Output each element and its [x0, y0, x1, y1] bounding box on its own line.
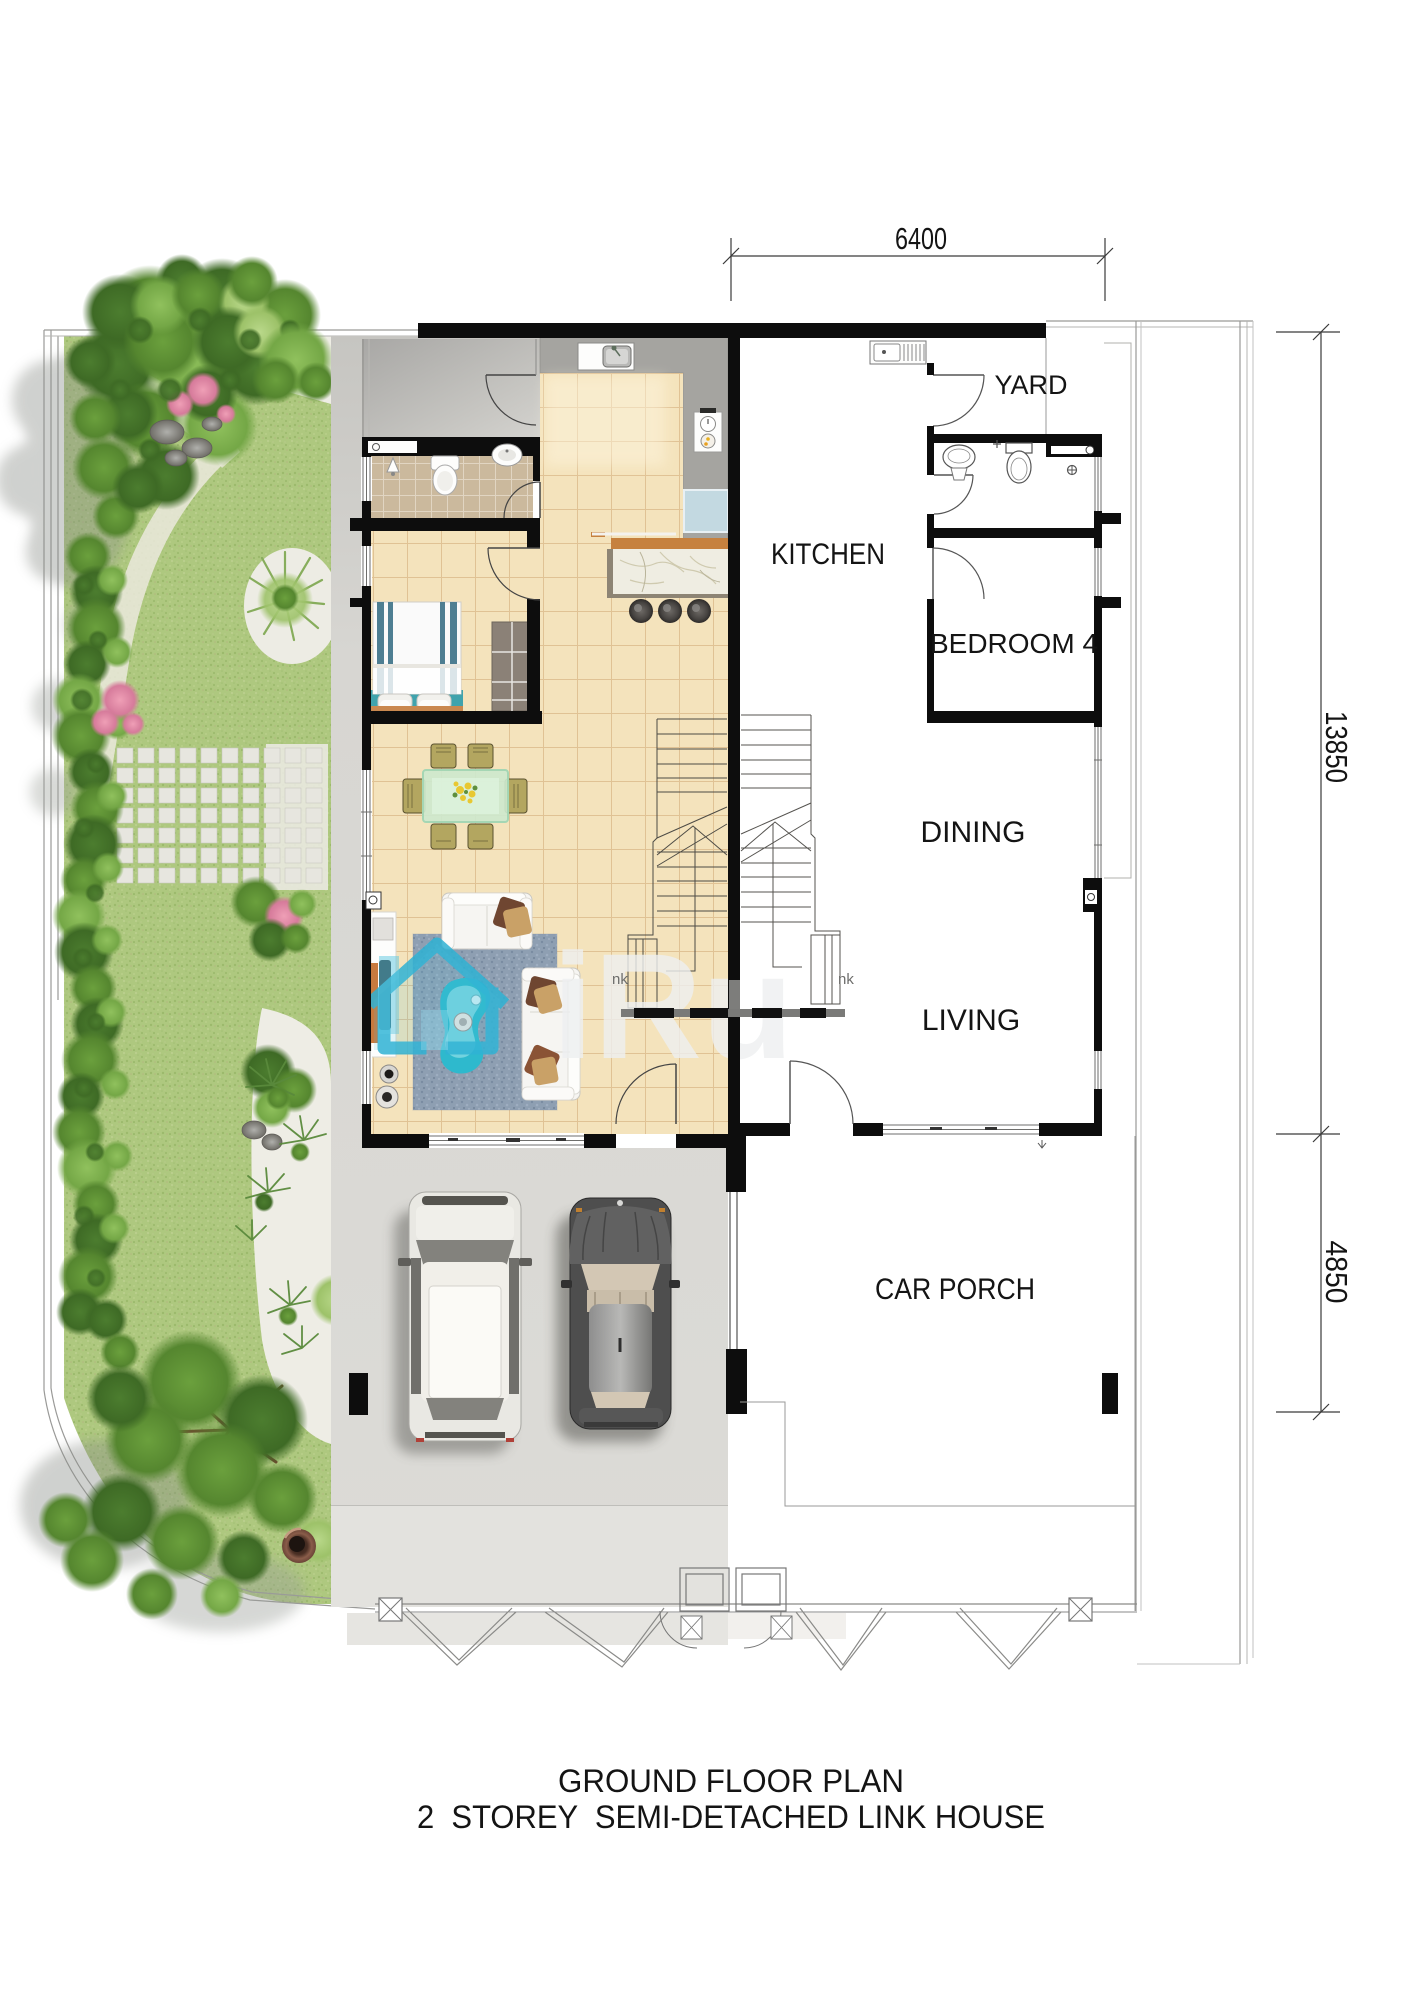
svg-text:KITCHEN: KITCHEN — [771, 538, 885, 571]
svg-text:nk: nk — [838, 971, 854, 988]
svg-text:iRu: iRu — [552, 922, 794, 1090]
svg-text:GROUND FLOOR PLAN: GROUND FLOOR PLAN — [558, 1763, 904, 1799]
svg-text:13850: 13850 — [1319, 711, 1354, 783]
svg-text:6400: 6400 — [895, 221, 947, 256]
svg-text:DINING: DINING — [921, 816, 1026, 849]
svg-text:LIVING: LIVING — [922, 1004, 1020, 1037]
svg-text:BEDROOM 4: BEDROOM 4 — [930, 628, 1098, 659]
svg-text:4850: 4850 — [1319, 1241, 1354, 1304]
svg-text:nk: nk — [612, 971, 628, 988]
svg-text:CAR PORCH: CAR PORCH — [875, 1273, 1035, 1306]
svg-text:2 STOREY SEMI-DETACHED LINK: 2 STOREY SEMI-DETACHED LINK HOUSE — [417, 1799, 1045, 1835]
svg-text:YARD: YARD — [994, 370, 1067, 400]
